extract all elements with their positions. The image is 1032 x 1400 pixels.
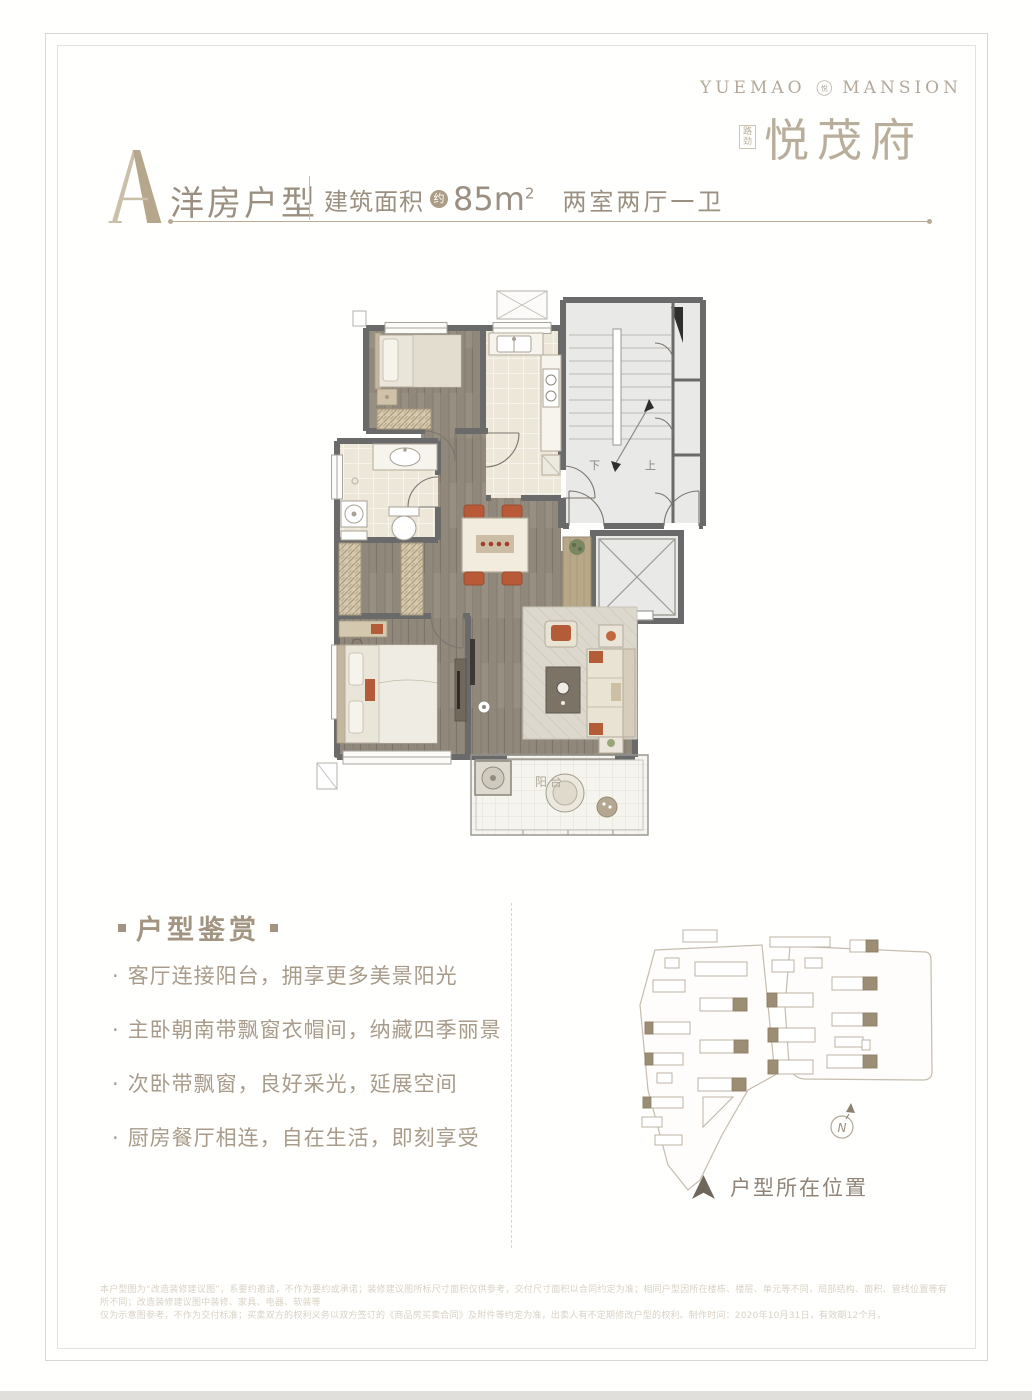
- feature-item: ·厨房餐厅相连，自在生活，即刻享受: [112, 1124, 512, 1153]
- siteplan-legend: 户型所在位置: [690, 1172, 868, 1202]
- svg-text:悦: 悦: [821, 84, 828, 93]
- compass-icon: N: [831, 1103, 855, 1138]
- stair-up-label: 上: [645, 459, 656, 472]
- disclaimer-text: 本户型图为“改造装修建议图”，系要约邀请，不作为要约或承诺；装修建议图所标尺寸面…: [100, 1284, 952, 1323]
- square-bullet-icon: [118, 924, 126, 932]
- feature-text: 厨房餐厅相连，自在生活，即刻享受: [128, 1124, 480, 1153]
- features-heading-row: 户型鉴赏: [118, 908, 278, 947]
- unit-type-title: 洋房户型: [170, 176, 318, 225]
- feature-item: ·次卧带飘窗，良好采光，延展空间: [112, 1070, 512, 1099]
- dot-bullet-icon: ·: [112, 1070, 120, 1099]
- stair-down-label: 下: [589, 459, 600, 472]
- dot-bullet-icon: ·: [112, 962, 120, 991]
- title-divider: [309, 176, 310, 220]
- svg-text:N: N: [838, 1121, 847, 1135]
- page-bottom-edge: [0, 1391, 1032, 1400]
- brand-name-right: MANSION: [842, 78, 962, 98]
- disclaimer-line1: 本户型图为“改造装修建议图”，系要约邀请，不作为要约或承诺；装修建议图所标尺寸面…: [100, 1284, 952, 1310]
- title-underline: [170, 221, 930, 222]
- section-divider-dashed: [511, 903, 512, 1248]
- brand-name-left: YUEMAO: [700, 78, 806, 98]
- brand-logo: YUEMAO 悦 MANSION: [700, 72, 962, 104]
- feature-text: 主卧朝南带飘窗衣帽间，纳藏四季丽景: [128, 1016, 502, 1045]
- features-list: ·客厅连接阳台，拥享更多美景阳光 ·主卧朝南带飘窗衣帽间，纳藏四季丽景 ·次卧带…: [112, 962, 512, 1178]
- area-label: 建筑面积: [324, 182, 424, 217]
- brochure-page: YUEMAO 悦 MANSION 路劲 悦茂府 洋房户型 建筑面积 约 85m2…: [0, 0, 1032, 1400]
- feature-item: ·主卧朝南带飘窗衣帽间，纳藏四季丽景: [112, 1016, 512, 1045]
- area-value: 85m2: [453, 180, 534, 218]
- feature-item: ·客厅连接阳台，拥享更多美景阳光: [112, 962, 512, 991]
- feature-text: 次卧带飘窗，良好采光，延展空间: [128, 1070, 458, 1099]
- location-arrow-icon: [690, 1174, 717, 1201]
- approx-badge: 约: [430, 190, 448, 208]
- features-heading: 户型鉴赏: [136, 908, 260, 947]
- brand-emblem-icon: 悦: [816, 72, 833, 104]
- area-superscript: 2: [525, 184, 535, 202]
- unit-letter-A: [108, 150, 162, 223]
- unit-specs: 建筑面积 约 85m2 两室两厅一卫: [324, 178, 724, 220]
- brand-cn-name: 悦茂府: [764, 104, 923, 169]
- dot-bullet-icon: ·: [112, 1124, 120, 1153]
- brand-cn-row: 路劲 悦茂府: [700, 104, 962, 169]
- square-bullet-icon: [270, 924, 278, 932]
- disclaimer-line2: 仅为示意图参考，不作为交付标准；买卖双方的权利义务以双方签订的《商品房买卖合同》…: [100, 1310, 952, 1323]
- brand-seal: 路劲: [739, 125, 756, 149]
- siteplan-drawing: N: [618, 912, 963, 1202]
- legend-label: 户型所在位置: [730, 1172, 868, 1202]
- plant-icon: [569, 539, 585, 555]
- floorplan-drawing: 下 上: [313, 283, 715, 841]
- balcony-label: 阳台: [535, 774, 565, 789]
- room-layout: 两室两厅一卫: [562, 182, 724, 217]
- dot-bullet-icon: ·: [112, 1016, 120, 1045]
- feature-text: 客厅连接阳台，拥享更多美景阳光: [128, 962, 458, 991]
